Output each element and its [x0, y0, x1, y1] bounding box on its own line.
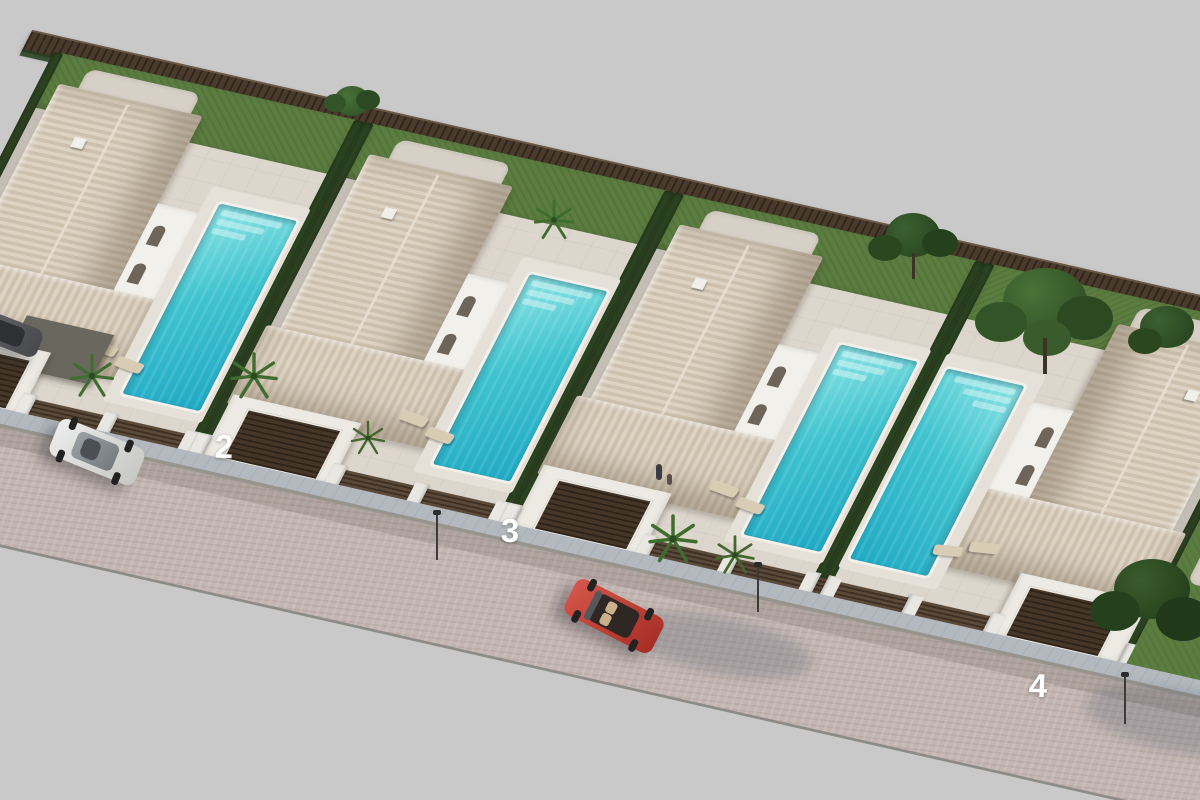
pine-tree-icon — [868, 205, 958, 280]
plot-number-4: 4 — [1028, 667, 1048, 706]
palm-tree-icon — [348, 418, 388, 458]
palm-tree-icon — [532, 198, 576, 242]
garden-tree-icon — [330, 82, 374, 120]
porch-arch — [126, 262, 148, 284]
person-figure — [667, 474, 672, 485]
porch-arch — [146, 225, 168, 247]
street-lamp-icon — [1124, 676, 1126, 724]
pine-tree-icon — [1128, 300, 1200, 370]
porch-arch — [1015, 464, 1037, 486]
palm-tree-icon — [228, 350, 280, 402]
palm-tree-icon — [68, 352, 116, 400]
plot-number-2: 2 — [214, 428, 234, 467]
person-figure — [656, 464, 662, 480]
street-lamp-icon — [436, 514, 438, 560]
garden-tree-icon — [1090, 555, 1200, 665]
palm-tree-icon — [646, 512, 700, 566]
plot-number-3: 3 — [500, 512, 520, 551]
garden-tree-icon — [975, 262, 1115, 377]
porch-arch — [766, 365, 788, 387]
porch-arch — [456, 295, 478, 317]
street-lamp-icon — [757, 566, 759, 612]
porch-arch — [1034, 426, 1056, 448]
aerial-development-render: 2 3 4 — [0, 0, 1200, 800]
palm-tree-icon — [712, 532, 758, 578]
porch-arch — [437, 333, 459, 355]
porch-arch — [747, 403, 769, 425]
